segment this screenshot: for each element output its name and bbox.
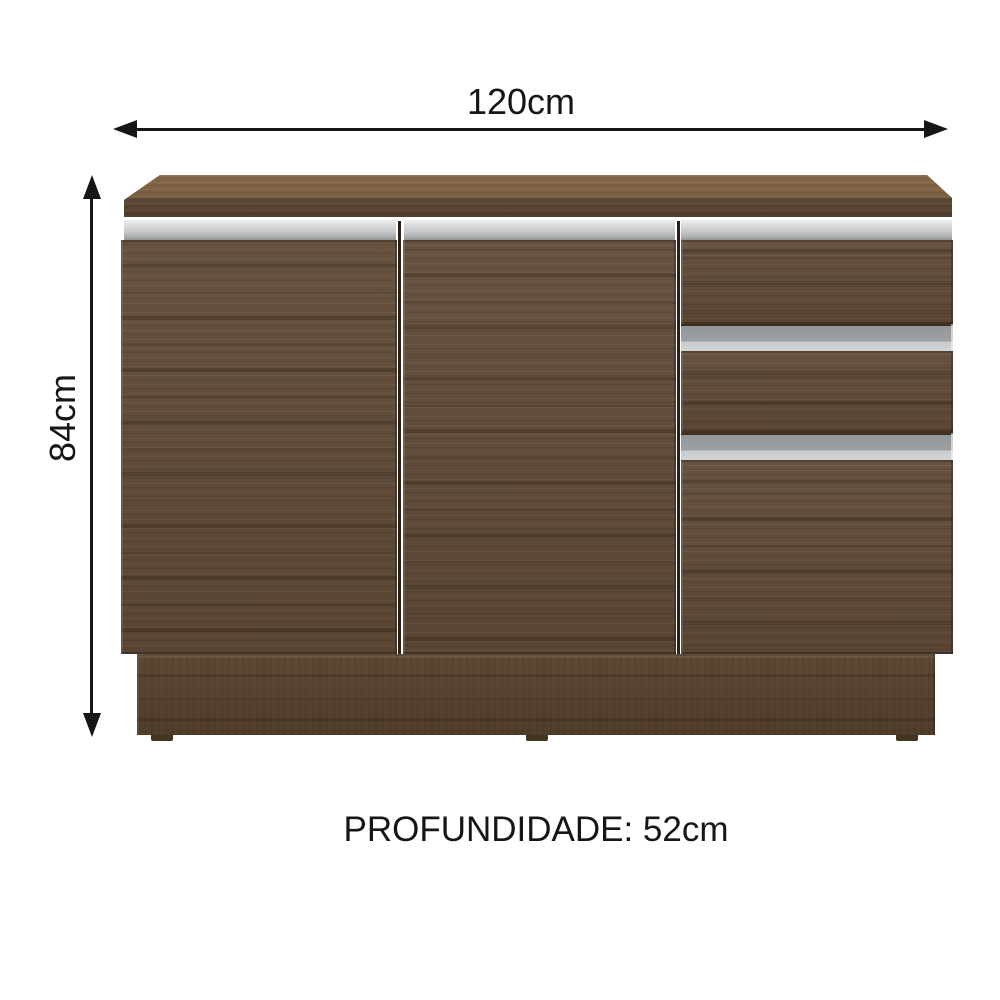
cabinet-base — [137, 654, 935, 735]
drawer-2-handle-strip — [681, 324, 953, 351]
drawer-3-handle-strip — [681, 433, 953, 460]
door-gap-right — [676, 221, 681, 654]
product-dimension-diagram: 120cm 84cm PROFUNDIDADE: 52cm — [0, 0, 1000, 1000]
top-drawer-handle-strip — [681, 220, 952, 241]
drawer-3-front — [681, 460, 953, 654]
height-arrow-line — [90, 196, 93, 716]
height-dimension-label: 84cm — [45, 374, 81, 462]
width-arrow-line-2 — [829, 128, 925, 131]
width-dimension-label: 120cm — [467, 84, 575, 120]
drawer-2-front — [681, 351, 953, 433]
height-arrow-bottom-head-icon — [83, 713, 101, 737]
depth-dimension-label: PROFUNDIDADE: 52cm — [343, 812, 728, 847]
width-arrow-right-head-icon — [924, 120, 948, 138]
cabinet-foot-right — [896, 735, 918, 741]
drawer-1-front — [681, 240, 953, 324]
cabinet-top-panel — [124, 175, 952, 217]
door-gap-left — [397, 221, 402, 654]
left-door-handle-strip — [124, 220, 396, 241]
width-arrow-line — [133, 128, 829, 131]
middle-door — [403, 240, 676, 654]
middle-door-handle-strip — [404, 220, 675, 241]
cabinet-foot-center — [526, 735, 548, 741]
left-door — [121, 240, 397, 654]
cabinet-foot-left — [151, 735, 173, 741]
